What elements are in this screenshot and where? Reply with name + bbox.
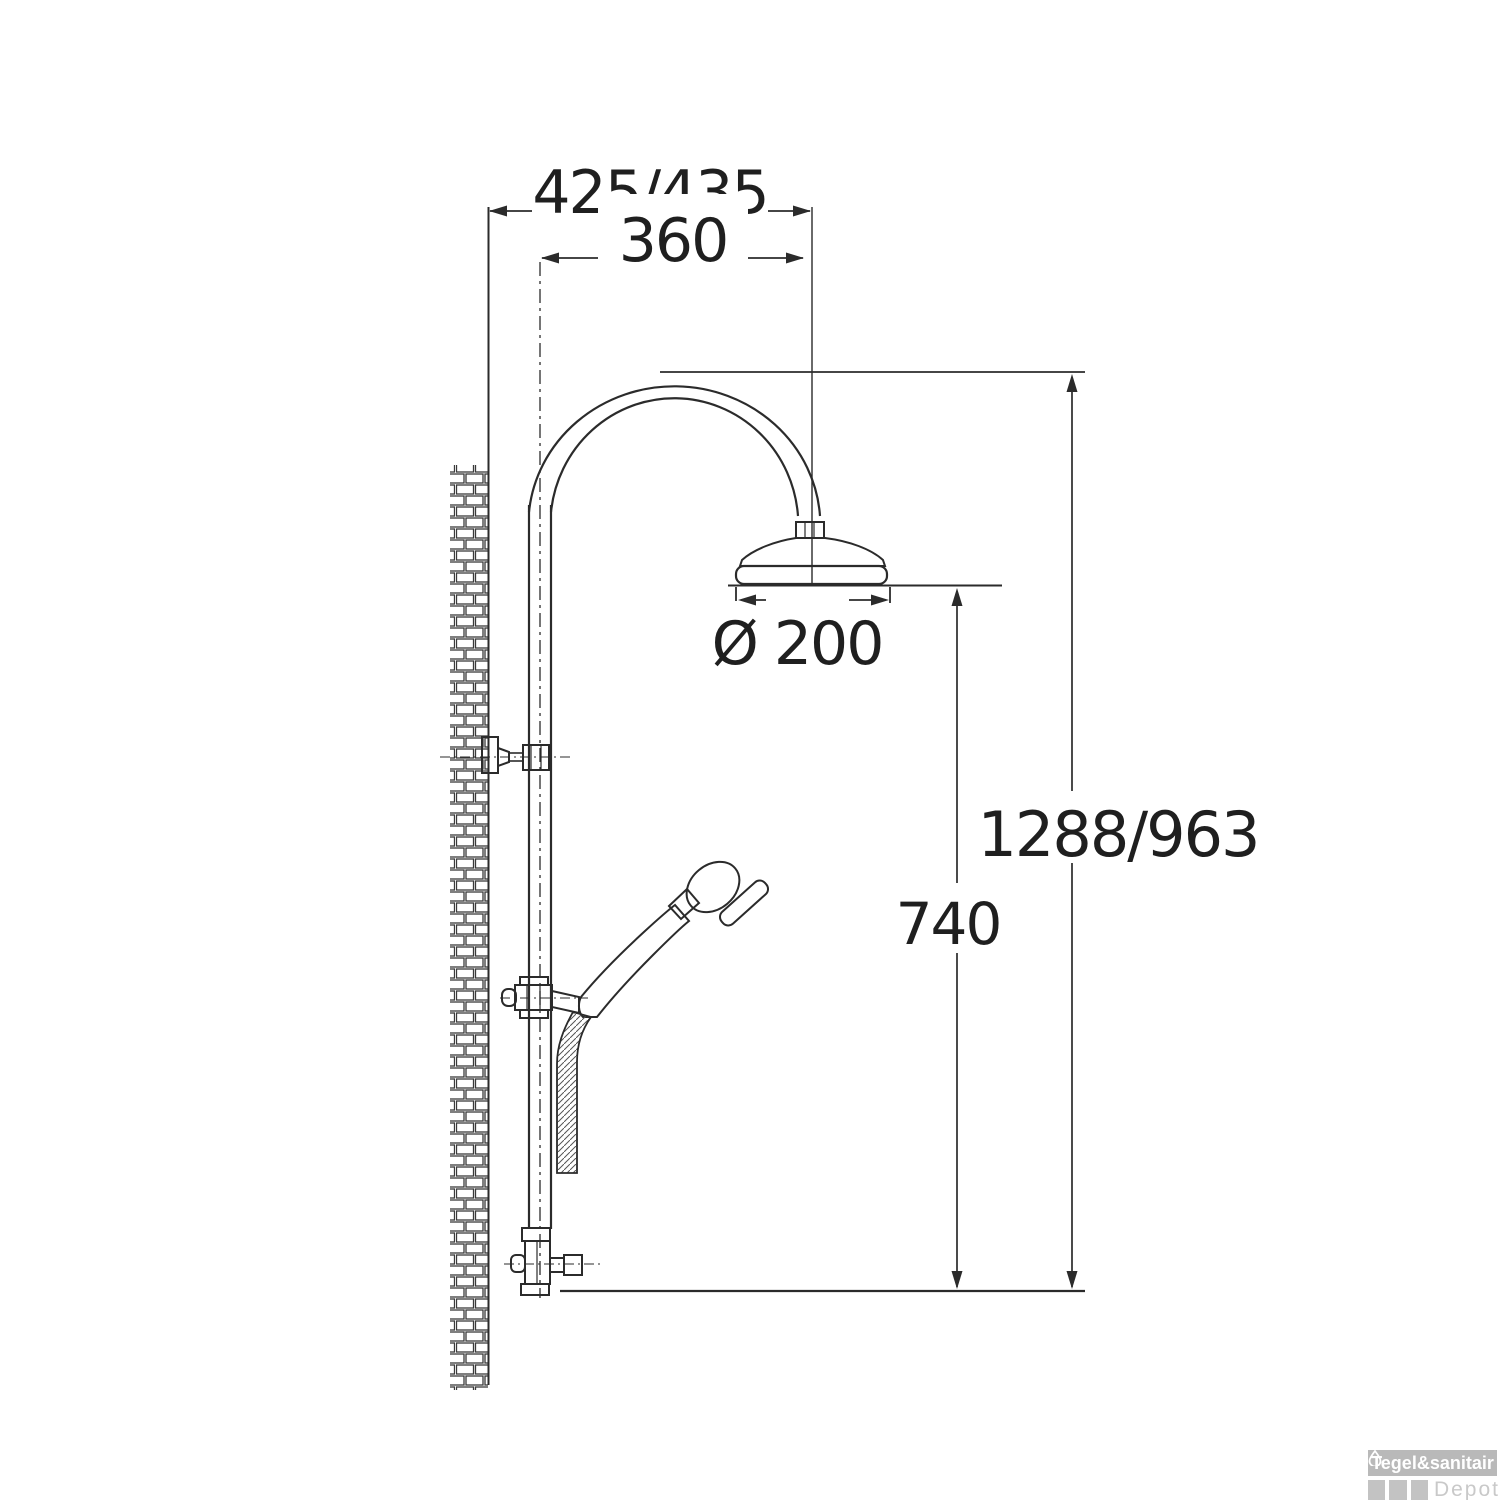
brick-wall [450, 207, 489, 1390]
hand-shower-spray-plate [717, 878, 771, 929]
watermark-subrow: Depot [1368, 1478, 1500, 1500]
shower-arm-arc [529, 386, 824, 538]
dimension-column-height: 1288/963 [977, 374, 1258, 1289]
watermark-brand: Tegel&sanitair [1368, 1450, 1497, 1476]
dimension-label-head-to-valve: 740 [896, 890, 1001, 958]
water-drop-icon [1368, 1480, 1385, 1500]
dimension-label-arm-reach: 360 [619, 206, 728, 276]
drawing-canvas: 425/435 360 Ø 200 1288/963 740 Tegel&san… [0, 0, 1500, 1500]
shower-hose [557, 1012, 591, 1173]
hand-shower-handle [579, 905, 689, 1017]
dimension-label-column-height: 1288/963 [977, 798, 1258, 871]
rain-shower-head [736, 207, 887, 585]
watermark: Tegel&sanitair Depot [1368, 1450, 1500, 1500]
watermark-tile [1389, 1480, 1406, 1500]
watermark-sub-brand: Depot [1434, 1478, 1500, 1500]
dimension-head-to-valve: 740 [896, 588, 1001, 1289]
dimension-head-diameter: Ø 200 [712, 587, 890, 679]
watermark-tile [1411, 1480, 1428, 1500]
diverter-valve [504, 1228, 600, 1295]
dimension-label-head-diameter: Ø 200 [712, 609, 883, 679]
technical-drawing: 425/435 360 Ø 200 1288/963 740 [0, 0, 1500, 1500]
riser-pipe [529, 262, 551, 1298]
